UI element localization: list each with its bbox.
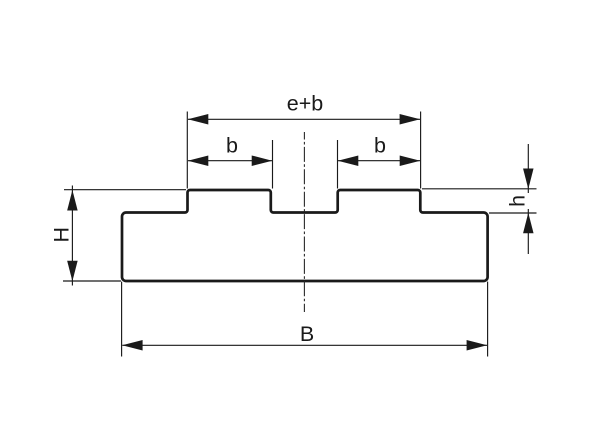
svg-text:b: b	[226, 134, 238, 158]
svg-text:H: H	[49, 227, 73, 243]
svg-text:B: B	[300, 322, 314, 346]
svg-text:b: b	[374, 134, 386, 158]
svg-text:e+b: e+b	[287, 92, 324, 116]
svg-text:h: h	[506, 195, 530, 207]
